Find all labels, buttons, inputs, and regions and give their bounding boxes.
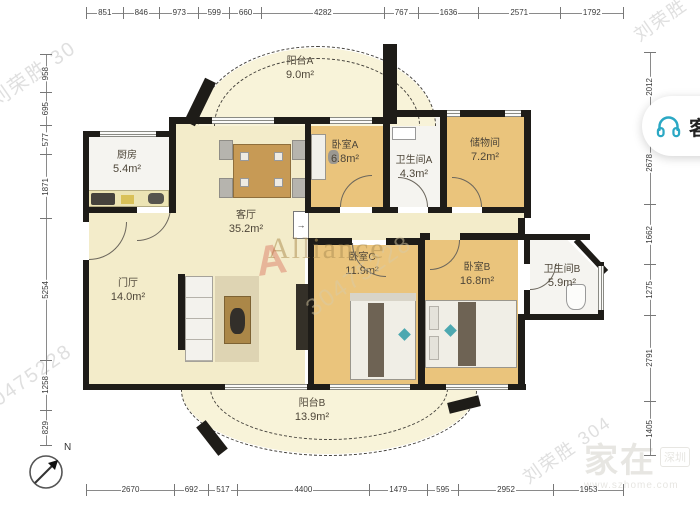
dimension-value: 517: [215, 486, 230, 494]
wall: [482, 207, 524, 213]
plate: [240, 152, 249, 161]
dimension-value: 2678: [646, 153, 654, 173]
room-name: 阳台A: [286, 56, 314, 69]
wall: [305, 207, 340, 213]
headset-icon: [655, 113, 682, 140]
dimension-segment: 1636: [418, 7, 478, 19]
partition-wall: [178, 274, 185, 350]
stove: [91, 193, 115, 205]
plate: [240, 178, 249, 187]
wall: [524, 290, 530, 316]
dimension-value: 5254: [42, 280, 50, 300]
room-name: 卧室C: [345, 252, 378, 265]
room-label-entry: 门厅 14.0m²: [111, 278, 145, 304]
dimension-segment: 517: [208, 484, 237, 496]
dimension-segment: 973: [159, 7, 198, 19]
dimension-segment: 1792: [560, 7, 624, 19]
watermark-text: 刘荣胜: [628, 0, 692, 47]
dimension-segment: 958: [40, 54, 52, 92]
chair: [292, 140, 306, 160]
dimension-value: 660: [238, 9, 253, 17]
room-area: 14.0m²: [111, 291, 145, 305]
dimension-segment: 695: [40, 92, 52, 124]
room-label-bedroom-a: 卧室A 6.8m²: [331, 140, 359, 166]
dimension-segment: 1405: [644, 401, 656, 456]
dimension-value: 4282: [313, 9, 333, 17]
wall: [524, 314, 604, 320]
wall: [524, 240, 530, 264]
room-area: 35.2m²: [229, 223, 263, 237]
wall: [169, 117, 176, 213]
dimension-segment: 829: [40, 410, 52, 446]
dimension-value: 2791: [646, 348, 654, 368]
dimension-segment: 767: [384, 7, 419, 19]
room-name: 门厅: [111, 278, 145, 291]
dimension-segment: 1662: [644, 204, 656, 264]
dimension-segment: 846: [123, 7, 159, 19]
dimension-segment: 1871: [40, 154, 52, 218]
customer-service-label: 客: [689, 112, 700, 141]
dimension-value: 1405: [646, 419, 654, 439]
dimension-value: 1792: [582, 9, 602, 17]
room-name: 卧室B: [460, 262, 494, 275]
kitchen-appliance: [121, 195, 134, 204]
sink: [148, 193, 164, 204]
dimension-segment: 2670: [86, 484, 174, 496]
dimension-value: 829: [42, 420, 50, 435]
watermark-text: 刘荣胜 304: [517, 409, 616, 489]
window: [505, 110, 521, 117]
room-name: 储物间: [470, 138, 500, 151]
dimension-segment: 4282: [261, 7, 383, 19]
window: [446, 384, 508, 390]
compass: N: [26, 450, 70, 499]
dimension-value: 1953: [579, 486, 599, 494]
room-area: 7.2m²: [470, 151, 500, 165]
dimension-segment: 660: [229, 7, 261, 19]
bed-headboard: [350, 293, 416, 301]
wall: [428, 207, 452, 213]
dimension-value: 692: [184, 486, 199, 494]
customer-service-button[interactable]: 客: [642, 96, 700, 156]
room-label-balcony-a: 阳台A 9.0m²: [286, 56, 314, 82]
dimension-value: 1636: [439, 9, 459, 17]
watermark-text: 30475228: [0, 340, 77, 419]
szhome-logo-badge: 深圳: [660, 447, 690, 467]
dimension-value: 599: [207, 9, 222, 17]
window: [598, 266, 604, 310]
dimension-line-top: 8518469735996604282767163625711792: [86, 7, 624, 19]
dimension-segment: 1258: [40, 360, 52, 410]
wall: [308, 238, 314, 384]
bathroom-sink: [392, 127, 416, 140]
bed-runner: [458, 302, 476, 366]
dimension-line-bottom: 26706925174400147959529521953: [86, 484, 624, 496]
room-name: 阳台B: [295, 398, 329, 411]
bed-runner: [368, 303, 384, 377]
wall: [518, 314, 525, 390]
dimension-value: 1662: [646, 225, 654, 245]
sliding-door: [225, 384, 307, 390]
desk: [311, 134, 326, 180]
wall: [383, 117, 390, 213]
wall: [386, 238, 420, 245]
wall: [83, 207, 137, 213]
dimension-value: 2670: [121, 486, 141, 494]
dimension-segment: 1275: [644, 264, 656, 315]
dimension-value: 4400: [293, 486, 313, 494]
window: [100, 131, 156, 137]
window: [330, 384, 410, 390]
window: [330, 117, 372, 124]
room-name: 厨房: [113, 150, 141, 163]
dimension-segment: 851: [86, 7, 123, 19]
pillow: [429, 336, 439, 360]
floorplan-screen: { "floorplan": { "rooms": [ {"name": "阳台…: [0, 0, 700, 507]
room-label-living: 客厅 35.2m²: [229, 210, 263, 236]
dimension-segment: 577: [40, 125, 52, 155]
plate: [274, 178, 283, 187]
dimension-value: 1275: [646, 280, 654, 300]
wall: [460, 233, 524, 240]
sofa: [185, 276, 213, 362]
dimension-segment: 595: [427, 484, 458, 496]
room-area: 6.8m²: [331, 153, 359, 167]
window: [212, 117, 274, 124]
room-label-bathroom-b: 卫生间B 5.9m²: [544, 264, 581, 290]
dimension-segment: 2952: [458, 484, 553, 496]
dimension-segment: 2571: [478, 7, 560, 19]
room-label-balcony-b: 阳台B 13.9m²: [295, 398, 329, 424]
dimension-value: 2012: [646, 77, 654, 97]
room-area: 4.3m²: [396, 168, 433, 182]
chair: [219, 178, 233, 198]
room-label-kitchen: 厨房 5.4m²: [113, 150, 141, 176]
compass-north-label: N: [64, 442, 71, 453]
dimension-value: 2571: [509, 9, 529, 17]
dimension-segment: 1953: [553, 484, 624, 496]
dimension-segment: 599: [198, 7, 229, 19]
tv: [230, 308, 245, 334]
room-area: 5.4m²: [113, 163, 141, 177]
dimension-segment: 1479: [369, 484, 427, 496]
wall: [524, 110, 531, 218]
wall: [305, 117, 311, 213]
room-label-bedroom-b: 卧室B 16.8m²: [460, 262, 494, 288]
wall: [308, 238, 352, 245]
room-area: 16.8m²: [460, 275, 494, 289]
wall: [83, 384, 225, 390]
dimension-value: 1871: [42, 177, 50, 197]
pillow: [429, 306, 439, 330]
dimension-value: 846: [134, 9, 149, 17]
wall: [418, 240, 425, 384]
dimension-value: 2952: [496, 486, 516, 494]
wall: [440, 110, 447, 213]
room-name: 客厅: [229, 210, 263, 223]
window: [447, 110, 460, 117]
room-area: 11.9m²: [345, 265, 378, 279]
dimension-value: 595: [435, 486, 450, 494]
dimension-value: 577: [42, 132, 50, 147]
wall: [372, 207, 398, 213]
dimension-segment: 692: [174, 484, 208, 496]
chair: [292, 178, 306, 198]
dimension-line-left: 958695577187152541258829: [40, 54, 52, 446]
dimension-segment: 2791: [644, 315, 656, 401]
wall: [420, 233, 430, 240]
room-label-storage: 储物间 7.2m²: [470, 138, 500, 164]
plate: [274, 152, 283, 161]
chair: [219, 140, 233, 160]
dimension-value: 1258: [42, 375, 50, 395]
wardrobe: [296, 284, 308, 350]
wall: [83, 260, 89, 390]
room-area: 13.9m²: [295, 411, 329, 425]
door-direction-icon: →: [293, 211, 309, 239]
dimension-segment: 4400: [237, 484, 369, 496]
dimension-value: 851: [97, 9, 112, 17]
room-name: 卫生间B: [544, 264, 581, 277]
compass-icon: [26, 450, 70, 494]
dimension-value: 767: [394, 9, 409, 17]
room-name: 卧室A: [331, 140, 359, 153]
room-label-bathroom-a: 卫生间A 4.3m²: [396, 155, 433, 181]
room-name: 卫生间A: [396, 155, 433, 168]
dimension-segment: 5254: [40, 218, 52, 360]
room-area: 9.0m²: [286, 69, 314, 83]
dimension-value: 958: [42, 66, 50, 81]
dimension-value: 1479: [388, 486, 408, 494]
dimension-value: 973: [172, 9, 187, 17]
dimension-value: 695: [42, 101, 50, 116]
room-area: 5.9m²: [544, 277, 581, 291]
room-label-bedroom-c: 卧室C 11.9m²: [345, 252, 378, 278]
